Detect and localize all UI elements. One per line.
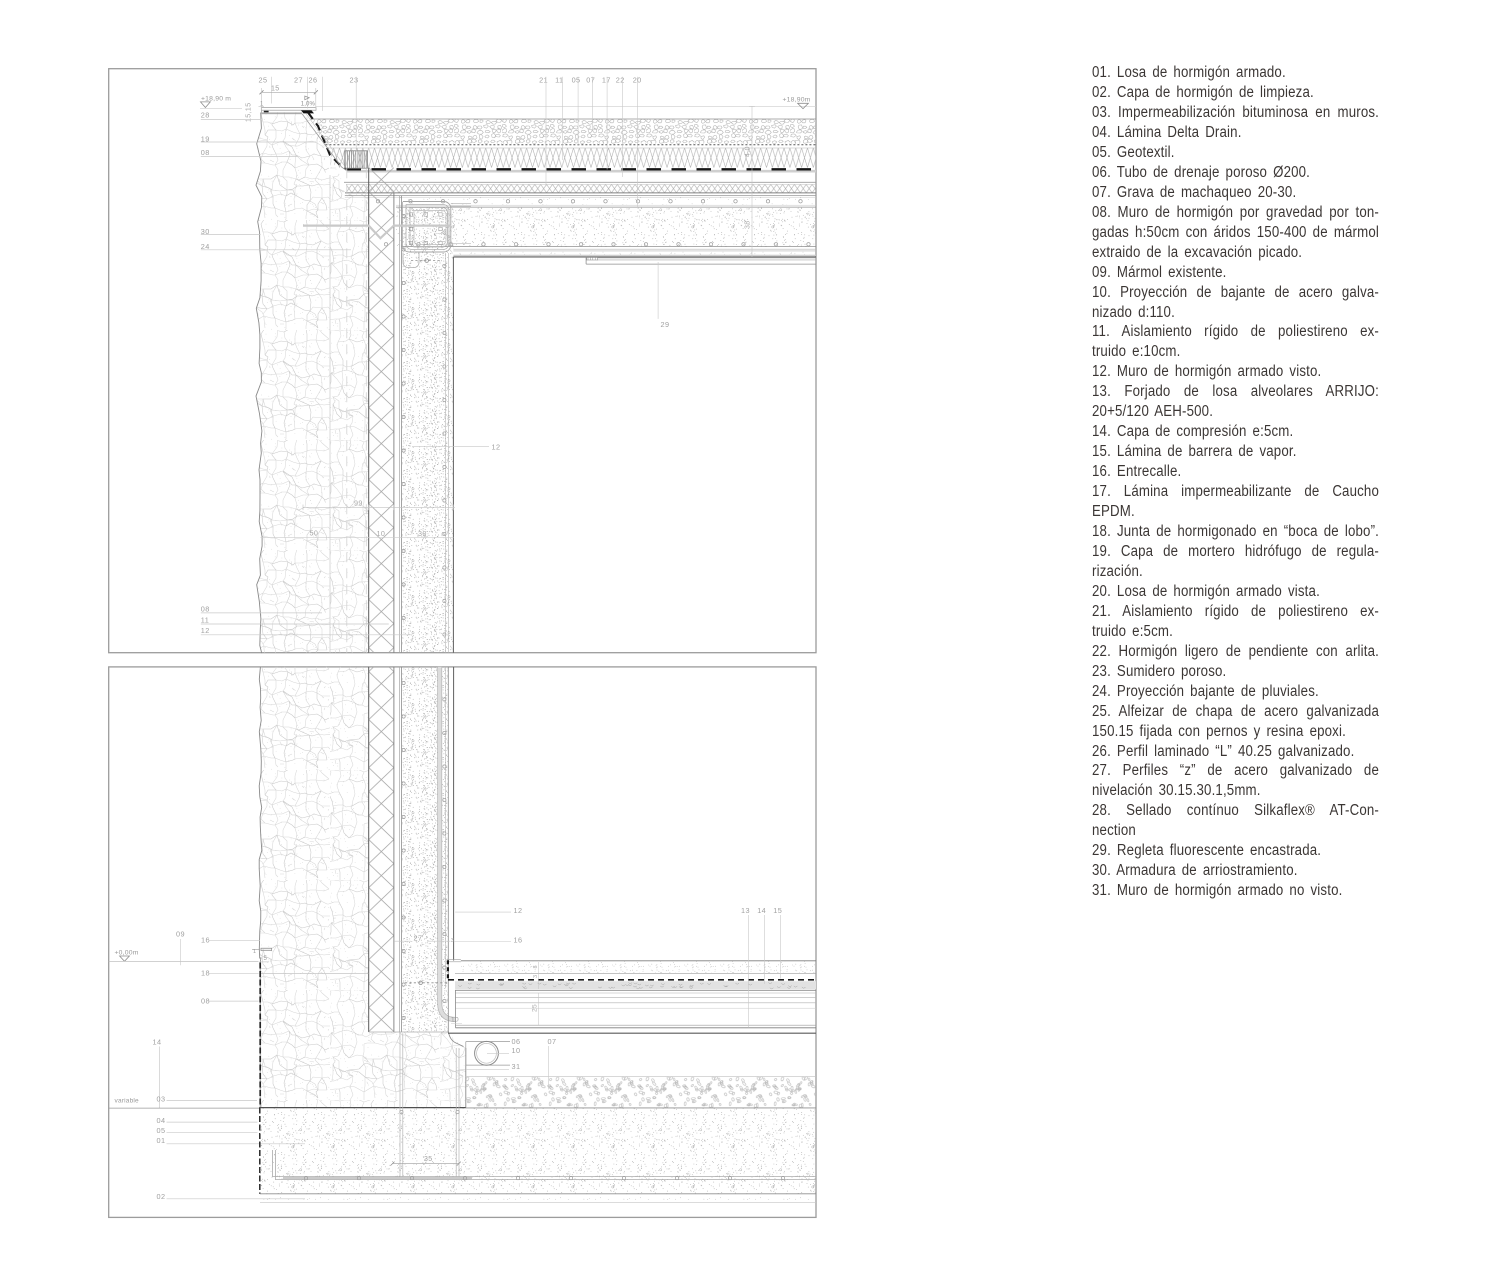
svg-text:1,0%: 1,0% (301, 102, 316, 108)
svg-text:14: 14 (153, 1037, 162, 1046)
svg-text:10: 10 (512, 1046, 521, 1055)
svg-text:03: 03 (157, 1094, 166, 1103)
svg-text:16: 16 (514, 936, 523, 945)
svg-text:27: 27 (294, 75, 303, 84)
svg-text:27: 27 (414, 934, 423, 943)
svg-text:11: 11 (201, 615, 209, 624)
svg-text:07: 07 (586, 75, 595, 84)
svg-text:26: 26 (309, 75, 318, 84)
svg-text:+18,90 m: +18,90 m (201, 95, 231, 102)
svg-text:05: 05 (157, 1126, 166, 1135)
svg-text:22: 22 (616, 75, 625, 84)
svg-text:99: 99 (354, 499, 363, 508)
svg-text:15: 15 (271, 86, 280, 93)
svg-text:17: 17 (602, 75, 611, 84)
svg-text:12: 12 (492, 443, 501, 452)
svg-text:variable: variable (115, 1097, 140, 1104)
svg-text:09: 09 (176, 929, 185, 938)
svg-text:02: 02 (157, 1192, 166, 1201)
svg-text:3: 3 (451, 938, 454, 944)
svg-text:3: 3 (533, 975, 539, 978)
svg-text:35: 35 (424, 1156, 433, 1163)
svg-text:13: 13 (741, 906, 750, 915)
svg-text:30: 30 (418, 529, 427, 538)
svg-text:08: 08 (201, 148, 210, 157)
svg-text:8: 8 (533, 965, 539, 968)
svg-text:05: 05 (572, 75, 581, 84)
svg-text:14: 14 (757, 906, 766, 915)
svg-text:50: 50 (310, 528, 319, 537)
svg-text:12: 12 (514, 906, 523, 915)
svg-text:10: 10 (451, 1017, 459, 1024)
svg-text:25: 25 (532, 1004, 539, 1012)
svg-text:25: 25 (259, 75, 268, 84)
svg-text:+18,90m: +18,90m (783, 96, 811, 103)
svg-text:29: 29 (661, 320, 670, 329)
svg-text:1: 1 (253, 949, 256, 955)
svg-text:06: 06 (512, 1037, 521, 1046)
svg-text:01: 01 (157, 1136, 166, 1145)
svg-text:10: 10 (377, 529, 386, 538)
svg-text:5: 5 (264, 956, 268, 962)
svg-text:07: 07 (548, 1037, 557, 1046)
svg-text:21: 21 (539, 75, 548, 84)
svg-text:38: 38 (745, 220, 752, 229)
svg-text:4,0: 4,0 (745, 146, 752, 157)
svg-text:16: 16 (201, 935, 210, 944)
svg-text:31: 31 (512, 1062, 521, 1071)
svg-text:28: 28 (201, 110, 210, 119)
svg-text:08: 08 (201, 604, 210, 613)
svg-text:15: 15 (773, 906, 782, 915)
svg-text:23: 23 (350, 75, 359, 84)
svg-text:+0,00m: +0,00m (115, 949, 139, 956)
svg-text:15,15: 15,15 (246, 102, 253, 122)
svg-text:04: 04 (157, 1116, 166, 1125)
svg-text:12: 12 (201, 626, 210, 635)
